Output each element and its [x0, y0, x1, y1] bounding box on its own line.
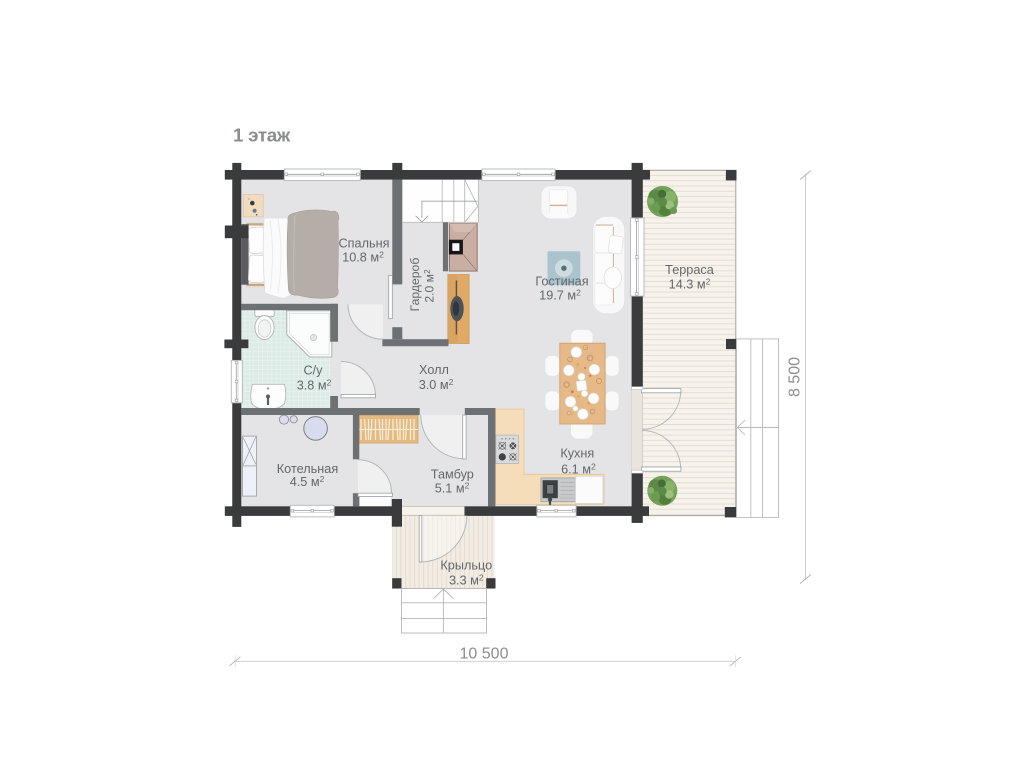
- svg-text:4.5 м2: 4.5 м2: [290, 474, 325, 489]
- svg-text:Кухня: Кухня: [560, 447, 594, 461]
- svg-text:2.0 м2: 2.0 м2: [423, 269, 437, 303]
- svg-text:Гостиная: Гостиная: [535, 275, 588, 289]
- svg-text:3.0 м2: 3.0 м2: [419, 377, 454, 392]
- svg-text:10 500: 10 500: [460, 646, 509, 663]
- svg-text:Спальня: Спальня: [339, 237, 390, 251]
- svg-text:Гардероб: Гардероб: [408, 258, 422, 312]
- svg-text:10.8 м2: 10.8 м2: [342, 250, 384, 265]
- svg-text:5.1 м2: 5.1 м2: [435, 481, 470, 496]
- svg-text:3.3 м2: 3.3 м2: [449, 573, 484, 588]
- svg-text:19.7 м2: 19.7 м2: [539, 288, 581, 303]
- svg-text:С/у: С/у: [303, 364, 323, 378]
- svg-text:8 500: 8 500: [787, 357, 804, 397]
- svg-text:Холл: Холл: [419, 363, 449, 377]
- svg-text:14.3 м2: 14.3 м2: [669, 277, 711, 292]
- svg-text:3.8 м2: 3.8 м2: [297, 378, 332, 393]
- svg-text:6.1 м2: 6.1 м2: [561, 462, 596, 477]
- svg-text:Тамбур: Тамбур: [431, 468, 474, 482]
- svg-text:1 этаж: 1 этаж: [233, 125, 291, 146]
- svg-text:Терраса: Терраса: [665, 263, 715, 277]
- svg-text:Крыльцо: Крыльцо: [440, 559, 492, 573]
